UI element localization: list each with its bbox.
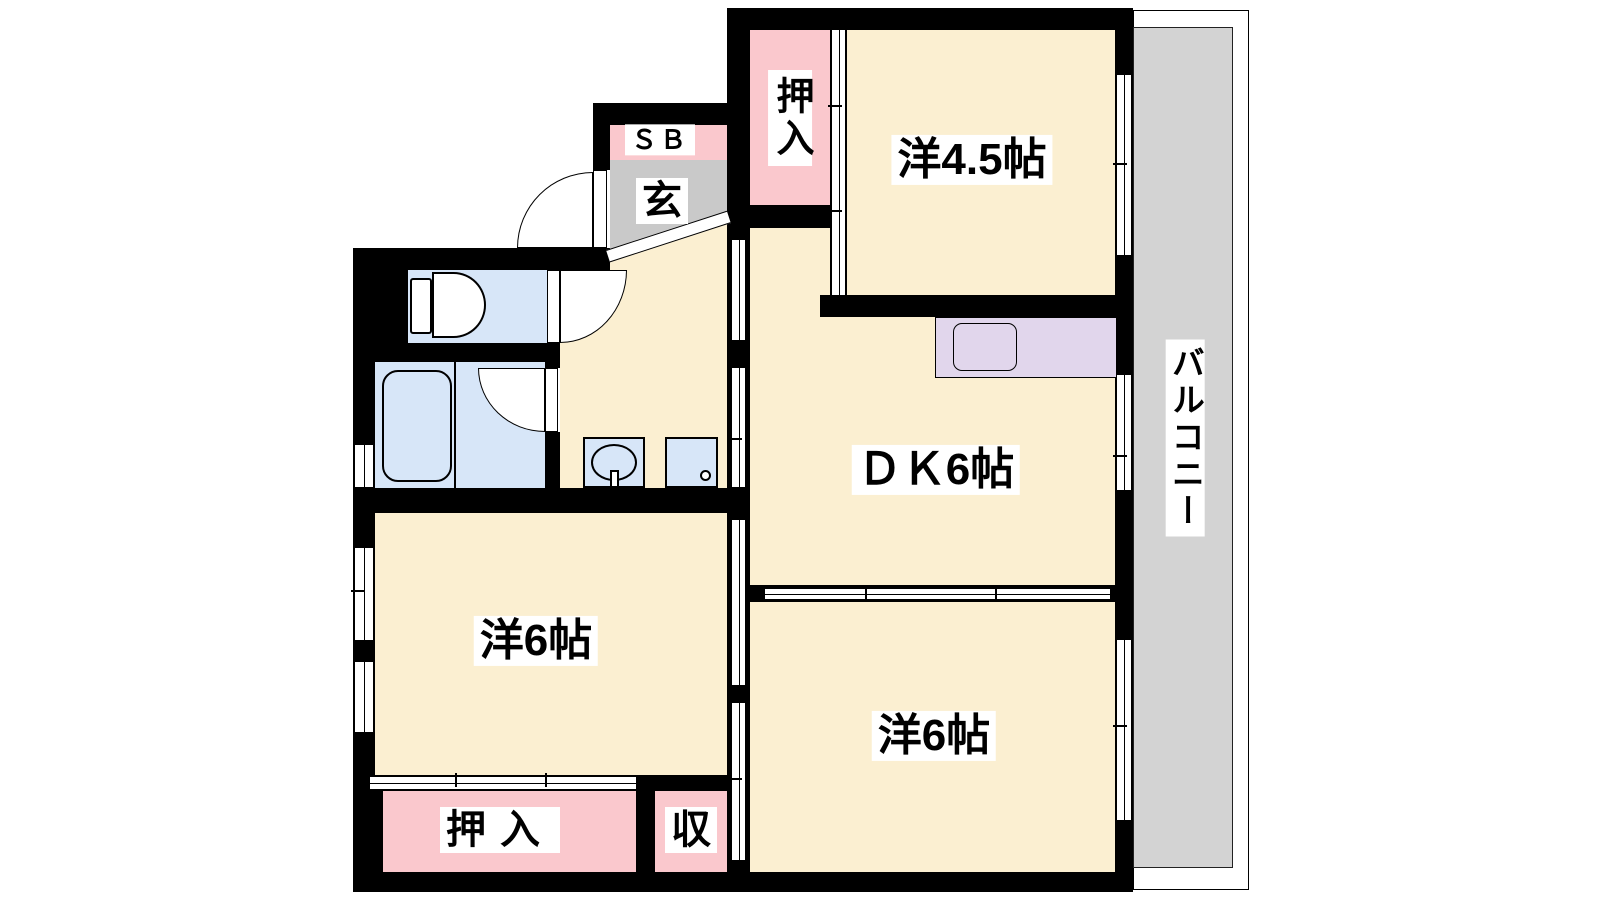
wall [1115, 490, 1133, 640]
wall [353, 488, 750, 513]
wall [727, 205, 830, 228]
wall [593, 103, 727, 125]
window [1115, 375, 1133, 490]
sliding-door [730, 520, 747, 685]
toilet-door-icon [547, 270, 560, 343]
shoe-box-label: ＳＢ [625, 124, 695, 155]
wall [1115, 8, 1133, 75]
sliding-door [730, 368, 747, 487]
bath-partition-line [454, 362, 456, 488]
washbasin-tap-icon [610, 470, 619, 488]
sliding-door [830, 30, 847, 295]
entrance-door-icon [593, 170, 607, 248]
washing-machine-icon [665, 437, 718, 488]
washing-machine-drain-icon [700, 470, 711, 481]
kitchen-sink-icon [953, 323, 1017, 371]
window [1115, 640, 1133, 820]
bathtub-icon [382, 370, 452, 482]
closet-bottom-label: 押入 [440, 807, 560, 853]
bathroom-door-icon [545, 368, 558, 432]
floor-plan: 洋4.5帖 ＤＫ6帖 洋6帖 洋6帖 押入 押入 収 ＳＢ 玄 バルコニー [0, 0, 1600, 900]
sliding-door [370, 775, 636, 791]
wall [375, 343, 560, 362]
wall [545, 248, 575, 270]
wall [1115, 255, 1133, 375]
window [1115, 75, 1133, 255]
toilet-icon [410, 278, 432, 334]
window [353, 445, 375, 487]
sliding-door [765, 587, 1110, 601]
closet-top-label: 押入 [768, 70, 812, 166]
wall [353, 872, 1133, 892]
wall [727, 8, 750, 228]
wall [727, 8, 1133, 30]
wall [820, 295, 1133, 317]
room-label-dk: ＤＫ6帖 [852, 445, 1020, 495]
window [353, 662, 375, 732]
sliding-door [730, 240, 747, 340]
room-label-western-6-right: 洋6帖 [872, 711, 996, 761]
storage-label: 収 [665, 807, 717, 853]
dk-floor [750, 228, 830, 320]
wall [655, 775, 727, 791]
balcony-label: バルコニー [1166, 340, 1205, 537]
window [353, 548, 375, 640]
entrance-label: 玄 [636, 178, 688, 224]
room-label-western-4-5: 洋4.5帖 [891, 135, 1052, 185]
entrance-door-swing [517, 172, 593, 248]
wall [593, 103, 610, 170]
wall [636, 775, 655, 872]
room-label-western-6-left: 洋6帖 [474, 616, 598, 666]
wall [545, 432, 560, 490]
sliding-door [730, 703, 747, 860]
